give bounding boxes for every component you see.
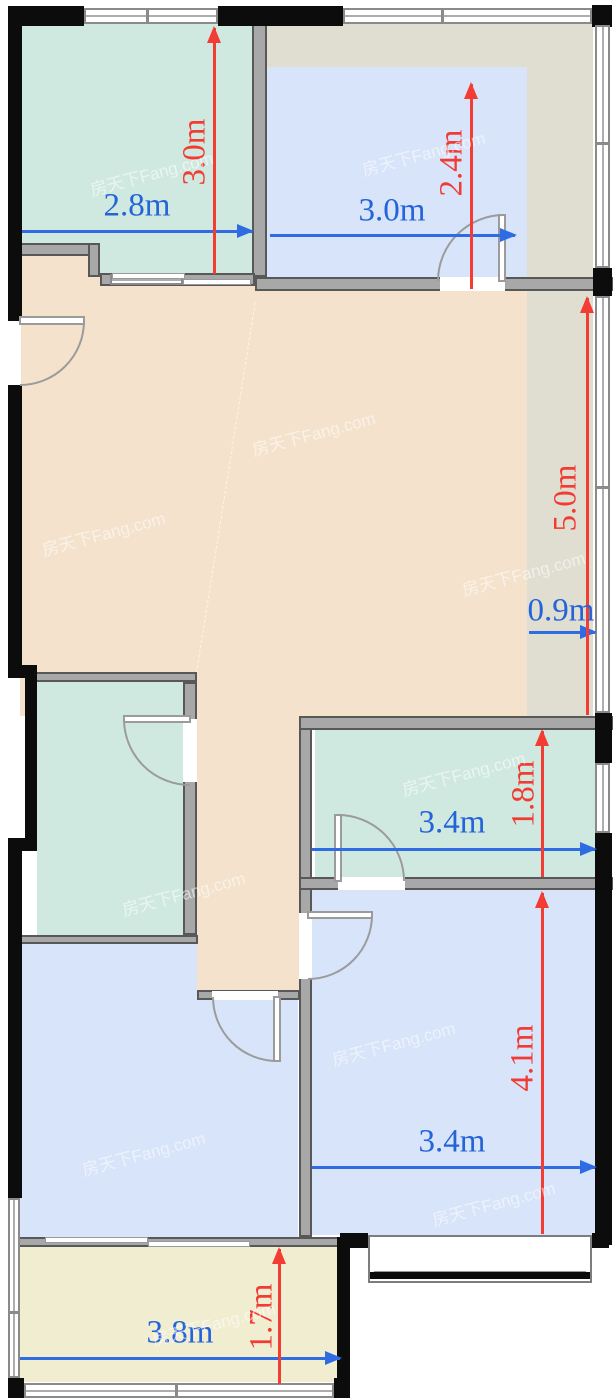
- dimension-label: 5.0m: [550, 465, 583, 532]
- dimension-label: 3.4m: [419, 807, 486, 840]
- dimension-arrow-horizontal: [312, 848, 595, 851]
- dimension-arrow-vertical: [541, 893, 544, 1234]
- dimension-label: 0.9m: [528, 595, 595, 628]
- dimension-arrow-horizontal: [20, 1357, 340, 1360]
- dimension-label: 4.1m: [507, 1025, 540, 1092]
- dimension-arrow-vertical: [213, 28, 216, 274]
- dimension-label: 3.8m: [147, 1317, 214, 1350]
- door-arc: [20, 215, 505, 1061]
- door-arcs: [0, 0, 614, 1400]
- dimension-label: 1.7m: [246, 1284, 279, 1351]
- dimension-label: 3.0m: [359, 195, 426, 228]
- dimension-arrow-horizontal: [312, 1166, 595, 1169]
- dimension-arrow-vertical: [470, 84, 473, 289]
- dimension-label: 3.0m: [179, 119, 212, 186]
- dimension-label: 3.4m: [419, 1126, 486, 1159]
- dimension-arrow-vertical: [586, 298, 589, 715]
- dimension-arrow-horizontal: [22, 230, 252, 233]
- dimension-label: 2.4m: [436, 130, 469, 197]
- dimension-arrow-horizontal: [270, 234, 515, 237]
- dimension-label: 1.8m: [508, 761, 541, 828]
- dimension-label: 2.8m: [104, 190, 171, 223]
- floor-plan: 2.8m 3.0m 3.0m 2.4m 5.0m 0.9m 3.4m 1.8m …: [0, 0, 614, 1400]
